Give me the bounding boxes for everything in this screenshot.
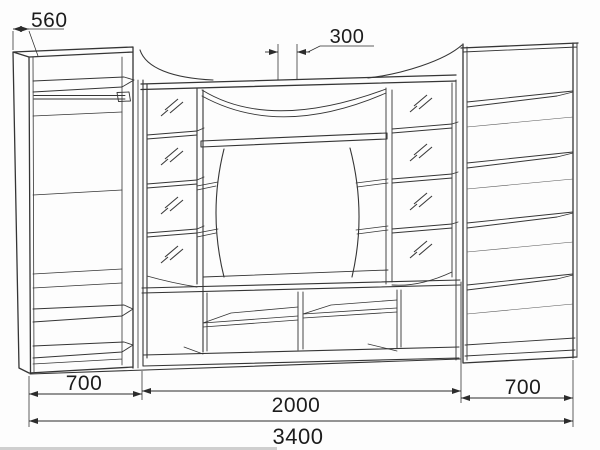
- wardrobe-inner-frame: [33, 57, 138, 372]
- glass-hatch-icon: [161, 99, 183, 116]
- niche-top-shelf: [201, 133, 387, 147]
- base-frame: [30, 280, 460, 374]
- extension-lines: [278, 44, 374, 80]
- right-unit-frame: [461, 43, 578, 363]
- hanging-rail: [34, 92, 131, 102]
- right-column-shelves: [392, 122, 458, 233]
- glass-hatch-icon: [410, 193, 432, 210]
- glass-hatch-icon: [161, 197, 183, 214]
- left-column-shelves: [147, 128, 204, 237]
- right-shelf-unit: [461, 43, 578, 363]
- glass-hatch-icon: [161, 148, 183, 165]
- left-column-frame: [143, 80, 203, 366]
- dimension-top-center: 300: [265, 26, 374, 80]
- glass-hatch-icon: [410, 144, 432, 161]
- dimension-side-depth: 560: [13, 9, 68, 56]
- dimension-label: 700: [66, 372, 103, 395]
- glass-hatch-icon: [161, 246, 183, 263]
- glass-hatch-icon: [410, 241, 432, 258]
- right-unit-shelves: [467, 91, 573, 290]
- glass-hatch-icon: [410, 95, 432, 112]
- base-cabinet: [30, 280, 461, 374]
- dimension-left-width: 700: [29, 372, 142, 395]
- niche-floor: [203, 270, 388, 277]
- right-column-frame: [386, 80, 456, 360]
- dimension-label: 2000: [272, 394, 321, 417]
- wave-valance: [202, 89, 386, 117]
- dimension-label: 300: [330, 26, 365, 48]
- left-wardrobe-section: [13, 47, 138, 373]
- bridge-curves: [140, 45, 462, 80]
- furniture-drawing: 560 300 700 2000 700: [0, 0, 600, 450]
- dimension-label: 560: [31, 9, 68, 32]
- tv-niche-section: [140, 45, 462, 277]
- dimension-label: 700: [505, 376, 542, 399]
- left-column-apron: [147, 276, 197, 287]
- left-display-column: [143, 80, 204, 366]
- base-shelves: [203, 300, 397, 327]
- dimension-label: 3400: [273, 424, 324, 449]
- wardrobe-top-shelf: [33, 77, 134, 92]
- dimension-right-width: 700: [461, 376, 573, 399]
- barrel-side-curves: [216, 148, 359, 277]
- right-unit-inner-frame: [463, 43, 577, 360]
- dimension-overall-width: 3400: [29, 421, 573, 449]
- technical-drawing-canvas: 560 300 700 2000 700: [0, 0, 600, 450]
- wardrobe-bottom-shelves: [33, 305, 133, 358]
- right-column-apron: [392, 272, 452, 285]
- wardrobe-panel-lines: [33, 112, 122, 288]
- dimension-annotations: 560 300 700 2000 700: [13, 9, 573, 449]
- right-unit-back-lines: [467, 117, 573, 314]
- dimension-center-width: 2000: [142, 391, 461, 417]
